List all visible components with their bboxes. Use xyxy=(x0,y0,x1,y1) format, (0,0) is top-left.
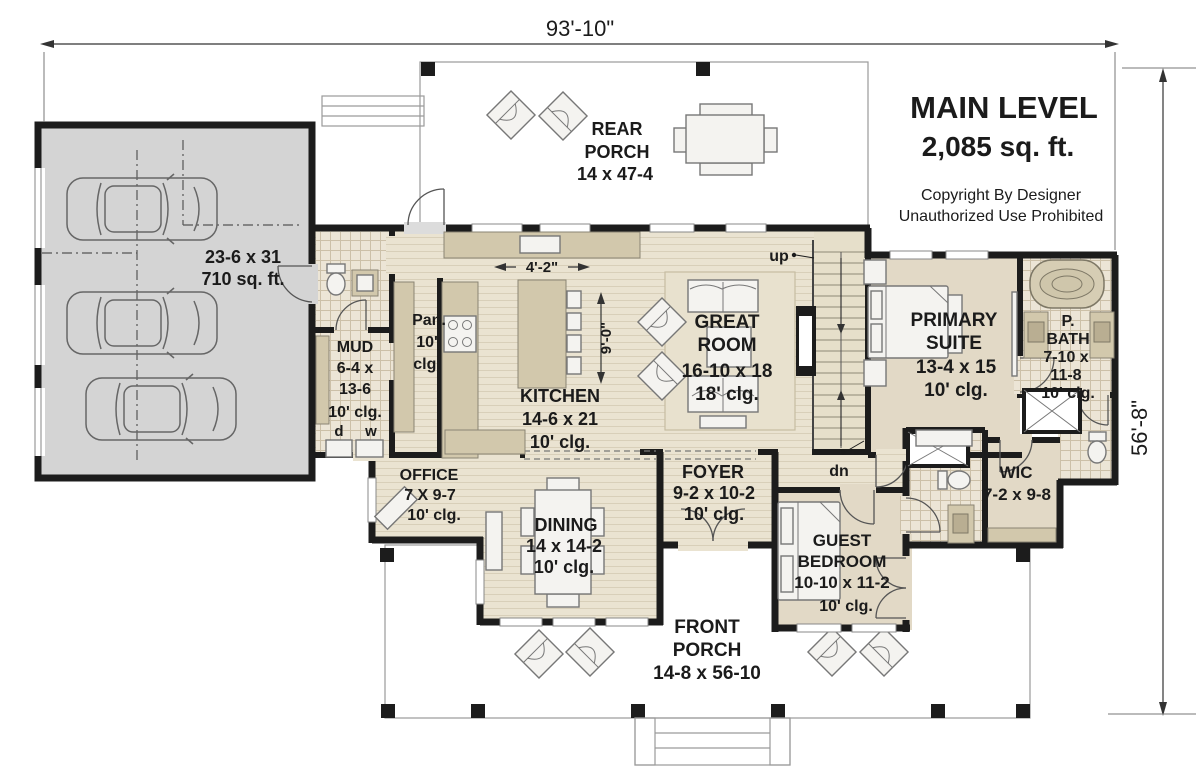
room-label-garage: 23-6 x 31 xyxy=(205,247,281,267)
overall-height-dim: 56'-8" xyxy=(1127,400,1152,456)
svg-text:11-8: 11-8 xyxy=(1050,367,1081,384)
room-label-rear-porch: REAR xyxy=(591,119,642,139)
room-label-pantry: Pan. xyxy=(412,312,446,329)
svg-text:16-10 x 18: 16-10 x 18 xyxy=(682,361,773,382)
svg-text:PORCH: PORCH xyxy=(673,640,742,661)
dryer-label: d xyxy=(334,423,343,440)
svg-text:ROOM: ROOM xyxy=(697,335,756,356)
svg-text:10' clg.: 10' clg. xyxy=(407,507,461,524)
room-label-primary-bath: P. xyxy=(1061,313,1074,330)
svg-text:10' clg.: 10' clg. xyxy=(1041,385,1095,402)
room-label-mud: MUD xyxy=(337,339,373,356)
svg-text:7 X 9-7: 7 X 9-7 xyxy=(404,487,456,504)
island-stool xyxy=(567,291,581,308)
svg-text:10' clg.: 10' clg. xyxy=(328,404,382,421)
washer-label: w xyxy=(364,423,377,440)
porch-post xyxy=(696,62,710,76)
kitchen-sink xyxy=(520,236,560,253)
pantry-shelves xyxy=(394,282,414,432)
svg-text:18' clg.: 18' clg. xyxy=(695,384,759,405)
toilet xyxy=(1088,432,1106,463)
toilet xyxy=(938,471,970,489)
garage xyxy=(30,125,312,478)
room-label-foyer: FOYER xyxy=(682,462,744,482)
svg-text:7-10 x: 7-10 x xyxy=(1043,349,1088,366)
svg-text:10' clg.: 10' clg. xyxy=(530,432,590,452)
washer xyxy=(356,440,383,457)
island-width-dim: 4'-2" xyxy=(526,259,558,276)
svg-text:10': 10' xyxy=(416,334,438,351)
kitchen-island xyxy=(518,280,566,388)
fireplace xyxy=(796,306,816,376)
svg-text:9-2 x 10-2: 9-2 x 10-2 xyxy=(673,483,755,503)
plan-area: 2,085 sq. ft. xyxy=(922,131,1075,162)
plan-title: MAIN LEVEL xyxy=(910,90,1098,125)
svg-text:7-2 x 9-8: 7-2 x 9-8 xyxy=(983,485,1051,504)
svg-text:10' clg.: 10' clg. xyxy=(924,380,988,401)
svg-text:710 sq. ft.: 710 sq. ft. xyxy=(201,269,284,289)
room-label-primary-suite: PRIMARY xyxy=(911,310,998,331)
svg-text:10' clg.: 10' clg. xyxy=(534,557,594,577)
mud-lockers xyxy=(316,336,329,424)
svg-text:BATH: BATH xyxy=(1046,331,1089,348)
svg-text:13-4 x 15: 13-4 x 15 xyxy=(916,357,997,378)
cooktop xyxy=(444,316,476,352)
room-label-dining: DINING xyxy=(535,515,598,535)
svg-text:10' clg.: 10' clg. xyxy=(819,598,873,615)
copyright-line-2: Unauthorized Use Prohibited xyxy=(899,208,1104,225)
svg-text:14 x 14-2: 14 x 14-2 xyxy=(526,536,602,556)
floor-plan-sheet: REAR PORCH 14 x 47-4 23-6 x 31 710 sq. f… xyxy=(0,0,1200,784)
stair-label-up: up xyxy=(769,248,789,265)
copyright-line-1: Copyright By Designer xyxy=(921,187,1082,204)
svg-text:BEDROOM: BEDROOM xyxy=(798,552,887,571)
sofa xyxy=(688,280,758,312)
room-label-kitchen: KITCHEN xyxy=(520,386,600,406)
island-depth-dim: 9'-0" xyxy=(598,322,615,354)
svg-text:10' clg.: 10' clg. xyxy=(684,504,744,524)
sideboard xyxy=(486,512,502,570)
bathtub xyxy=(1030,260,1104,308)
room-label-wic: WIC xyxy=(999,463,1032,482)
svg-text:SUITE: SUITE xyxy=(926,333,982,354)
garage-door-opening xyxy=(30,168,45,456)
island-stool xyxy=(567,335,581,352)
svg-text:14 x 47-4: 14 x 47-4 xyxy=(577,164,653,184)
nightstand xyxy=(864,360,886,386)
room-label-office: OFFICE xyxy=(400,467,459,484)
svg-text:14-8 x 56-10: 14-8 x 56-10 xyxy=(653,663,761,684)
overall-width-dim: 93'-10" xyxy=(546,16,614,41)
powder-toilet xyxy=(327,264,345,295)
svg-text:clg.: clg. xyxy=(413,356,441,373)
island-stool xyxy=(567,357,581,374)
svg-text:10-10 x 11-2: 10-10 x 11-2 xyxy=(794,573,889,592)
porch-post xyxy=(421,62,435,76)
room-label-guest-bedroom: GUEST xyxy=(813,531,872,550)
console-table xyxy=(700,416,746,428)
dryer xyxy=(326,440,352,457)
wic-shelf xyxy=(988,528,1056,542)
floor-plan-drawing: REAR PORCH 14 x 47-4 23-6 x 31 710 sq. f… xyxy=(0,0,1200,784)
stair-label-dn: dn xyxy=(829,463,849,480)
room-label-great-room: GREAT xyxy=(694,312,759,333)
svg-text:PORCH: PORCH xyxy=(584,142,649,162)
island-stool xyxy=(567,313,581,330)
dresser xyxy=(916,430,972,446)
barn-door xyxy=(1012,292,1017,376)
kitchen-cabinet-south xyxy=(445,430,525,454)
nightstand xyxy=(864,260,886,284)
svg-text:13-6: 13-6 xyxy=(339,381,371,398)
svg-text:6-4 x: 6-4 x xyxy=(337,360,374,377)
room-label-front-porch: FRONT xyxy=(674,617,740,638)
svg-text:14-6 x 21: 14-6 x 21 xyxy=(522,409,598,429)
